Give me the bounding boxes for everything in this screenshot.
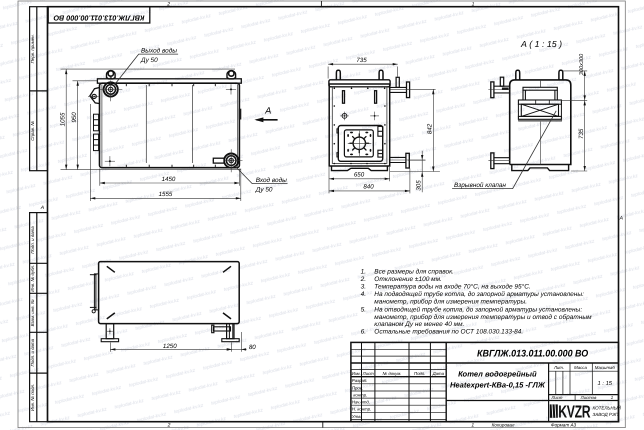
svg-text:Утв.: Утв. [352, 414, 362, 419]
svg-text:Пров.: Пров. [352, 385, 363, 390]
svg-text:2.: 2. [360, 276, 367, 283]
svg-text:Взам. инв. №: Взам. инв. № [30, 299, 35, 326]
svg-text:1: 1 [472, 2, 475, 8]
svg-text:80: 80 [249, 344, 256, 351]
svg-text:1.: 1. [361, 268, 367, 275]
svg-text:842: 842 [426, 123, 433, 134]
svg-text:№ докум.: № докум. [383, 371, 402, 376]
svg-text:На отводящей трубе котла, до з: На отводящей трубе котла, до запорной ар… [374, 306, 582, 313]
svg-text:А: А [619, 216, 624, 222]
svg-text:840: 840 [363, 184, 374, 191]
svg-text:Нач.отд.: Нач.отд. [352, 400, 370, 405]
svg-text:Лит.: Лит. [553, 365, 564, 370]
svg-text:Все размеры для справок.: Все размеры для справок. [374, 268, 454, 275]
svg-text:300х300: 300х300 [579, 53, 585, 75]
svg-text:Котел водогрейный: Котел водогрейный [458, 370, 537, 379]
svg-text:Масса: Масса [574, 365, 587, 370]
svg-text:305: 305 [415, 180, 422, 191]
svg-text:Ду 50: Ду 50 [255, 186, 273, 193]
svg-text:Копировал: Копировал [492, 423, 515, 428]
svg-text:Формат А3: Формат А3 [551, 423, 577, 428]
svg-text:2: 2 [166, 2, 170, 8]
svg-text:Подп.: Подп. [414, 371, 425, 376]
svg-text:Разраб.: Разраб. [352, 378, 368, 383]
svg-text:Подп. и дата: Подп. и дата [30, 338, 35, 366]
svg-text:На подводящей трубе котла, до: На подводящей трубе котла, до запорной а… [374, 291, 584, 298]
svg-text:Масштаб: Масштаб [595, 365, 616, 370]
svg-text:КВГЛЖ.013.011.00.000 ВО: КВГЛЖ.013.011.00.000 ВО [477, 349, 589, 360]
svg-text:Н. контр.: Н. контр. [352, 407, 371, 412]
svg-text:Инв. № подл.: Инв. № подл. [30, 384, 35, 411]
svg-text:1450: 1450 [162, 176, 176, 183]
svg-text:контр.: контр. [353, 393, 367, 398]
svg-text:Heatexpert-КВа-0,15 -ГЛЖ: Heatexpert-КВа-0,15 -ГЛЖ [450, 380, 546, 389]
svg-text:Справ. №: Справ. № [30, 121, 35, 141]
svg-text:манометр, прибор для измерения: манометр, прибор для измерения температу… [374, 299, 527, 306]
svg-text:Вход воды: Вход воды [256, 177, 287, 184]
svg-text:5.: 5. [361, 306, 367, 313]
svg-text:1: 1 [471, 423, 474, 429]
svg-text:Листов: Листов [580, 395, 597, 400]
svg-text:1250: 1250 [163, 343, 177, 350]
svg-text:1555: 1555 [159, 191, 173, 198]
svg-text:6.: 6. [361, 329, 367, 336]
svg-text:2: 2 [167, 423, 171, 429]
svg-text:манометр, прибор для измерения: манометр, прибор для измерения температу… [374, 314, 592, 321]
svg-text:Изм.: Изм. [352, 371, 361, 376]
svg-text:1 : 15: 1 : 15 [598, 381, 613, 387]
svg-text:3.: 3. [361, 284, 367, 291]
svg-text:КВГЛЖ.013.011.00.000 ВО: КВГЛЖ.013.011.00.000 ВО [53, 14, 144, 23]
svg-text:Отклонение ±100 мм.: Отклонение ±100 мм. [374, 276, 442, 283]
svg-text:4.: 4. [361, 291, 367, 298]
svg-text:Лист: Лист [362, 371, 374, 376]
svg-text:735: 735 [356, 57, 367, 64]
svg-text:Температура воды на входе 70°С: Температура воды на входе 70°С, на выход… [374, 284, 531, 291]
svg-text:Лист: Лист [550, 395, 562, 400]
svg-text:KVZR: KVZR [558, 401, 591, 421]
svg-text:Взрывной клапан: Взрывной клапан [454, 182, 506, 189]
svg-text:Дата: Дата [432, 371, 445, 376]
svg-text:А: А [40, 205, 45, 211]
svg-text:Ду 50: Ду 50 [140, 57, 158, 64]
svg-text:клапаном Ду не менее 40 мм.: клапаном Ду не менее 40 мм. [374, 321, 464, 328]
svg-text:Остальные требования по ОСТ 10: Остальные требования по ОСТ 108.030.133-… [374, 329, 523, 336]
svg-text:Выход воды: Выход воды [141, 47, 177, 54]
svg-text:А: А [264, 106, 271, 116]
svg-text:1055: 1055 [60, 112, 67, 126]
svg-text:Инв. № дубл.: Инв. № дубл. [30, 265, 35, 292]
svg-text:Подп. и дата: Подп. и дата [30, 226, 35, 254]
svg-text:ЗАВОД РЭП: ЗАВОД РЭП [593, 412, 620, 417]
svg-text:735: 735 [578, 128, 585, 139]
svg-text:А ( 1 : 15 ): А ( 1 : 15 ) [520, 39, 562, 49]
svg-text:КОТЕЛЬНЫЙ: КОТЕЛЬНЫЙ [593, 405, 622, 411]
svg-text:Перв. примен.: Перв. примен. [30, 34, 35, 63]
svg-text:950: 950 [71, 112, 78, 123]
svg-text:650: 650 [354, 171, 365, 178]
